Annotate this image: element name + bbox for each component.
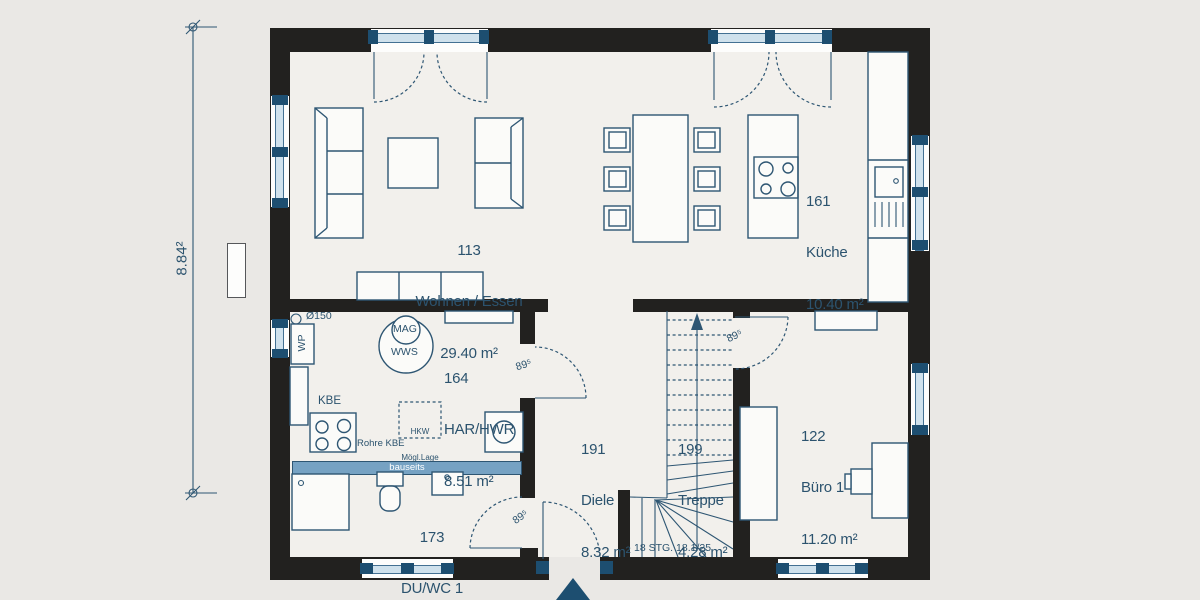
- room-area: 11.20 m²: [801, 531, 857, 548]
- window-kitchen-east-frame1: [912, 135, 928, 145]
- entrance-jamb-left: [536, 561, 549, 574]
- hkw-line2: Mögl.Lage: [399, 454, 441, 463]
- room-number: 173: [388, 529, 476, 546]
- room-name: Küche: [806, 244, 864, 261]
- window-har-west-frame2: [272, 349, 288, 358]
- wall-interior-horizontal-east: [633, 299, 908, 312]
- room-number: 113: [398, 242, 540, 259]
- room-label-buero: 122 Büro 1 11.20 m²: [801, 394, 857, 582]
- window-duwc-south-frame1: [360, 563, 373, 574]
- french-door-kitchen-jamb: [708, 30, 718, 44]
- dimension-text: 8.84²: [173, 229, 190, 289]
- window-buero-east-frame2: [912, 425, 928, 435]
- room-label-duwc: 173 DU/WC 1 5.74 m²: [388, 495, 476, 600]
- hkw-line1: HKW: [399, 428, 441, 437]
- wall-duwc-corner: [520, 548, 538, 557]
- vent-diameter-label: Ø150: [306, 311, 332, 323]
- room-number: 122: [801, 428, 857, 445]
- room-number: 199: [678, 441, 727, 458]
- french-door-living-jamb: [368, 30, 378, 44]
- rohre-kbe-label: Rohre KBE: [357, 439, 405, 450]
- window-kitchen-east-frame2: [912, 187, 928, 197]
- room-name: DU/WC 1: [388, 580, 476, 597]
- wall-buero-stub: [733, 311, 750, 318]
- window-living-west-frame3: [272, 198, 288, 208]
- room-name: HAR/HWR: [444, 421, 514, 438]
- mag-label: MAG: [393, 324, 417, 336]
- window-buero-south-frame1: [776, 563, 789, 574]
- french-door-living-mullion: [424, 30, 434, 44]
- room-area: 8.32 m²: [581, 544, 630, 561]
- hkw-label: HKW Mögl.Lage: [399, 410, 441, 480]
- window-living-west-frame2: [272, 147, 288, 157]
- room-area: 10.40 m²: [806, 296, 864, 313]
- window-kitchen-east-frame3: [912, 240, 928, 250]
- room-number: 191: [581, 441, 630, 458]
- room-number: 164: [444, 370, 514, 387]
- room-label-treppe: 199 Treppe 4.28 m²: [678, 407, 727, 595]
- wall-har-diele-lower: [520, 398, 535, 498]
- french-door-kitchen-jamb2: [822, 30, 832, 44]
- room-name: Diele: [581, 492, 630, 509]
- french-door-kitchen-mullion: [765, 30, 775, 44]
- room-label-kueche: 161 Küche 10.40 m²: [806, 159, 864, 347]
- floor-plan: bauseits: [0, 0, 1200, 600]
- exterior-duct: [227, 243, 246, 298]
- window-har-west-frame1: [272, 319, 288, 328]
- room-name: Treppe: [678, 492, 727, 509]
- kbe-label: KBE: [318, 395, 341, 408]
- room-name: Wohnen / Essen: [398, 293, 540, 310]
- french-door-living-jamb2: [479, 30, 489, 44]
- heat-pump-label: WP: [297, 329, 309, 357]
- room-name: Büro 1: [801, 479, 857, 496]
- window-living-west-frame1: [272, 95, 288, 105]
- wws-label: WWS: [391, 347, 418, 359]
- room-area: 8.51 m²: [444, 473, 514, 490]
- wall-treppe-buero: [733, 368, 750, 557]
- window-buero-east-frame1: [912, 363, 928, 373]
- stair-note-label: 18 STG. 18.1/25: [634, 543, 711, 555]
- room-number: 161: [806, 193, 864, 210]
- wall-right: [908, 28, 930, 580]
- room-label-diele: 191 Diele 8.32 m²: [581, 407, 630, 595]
